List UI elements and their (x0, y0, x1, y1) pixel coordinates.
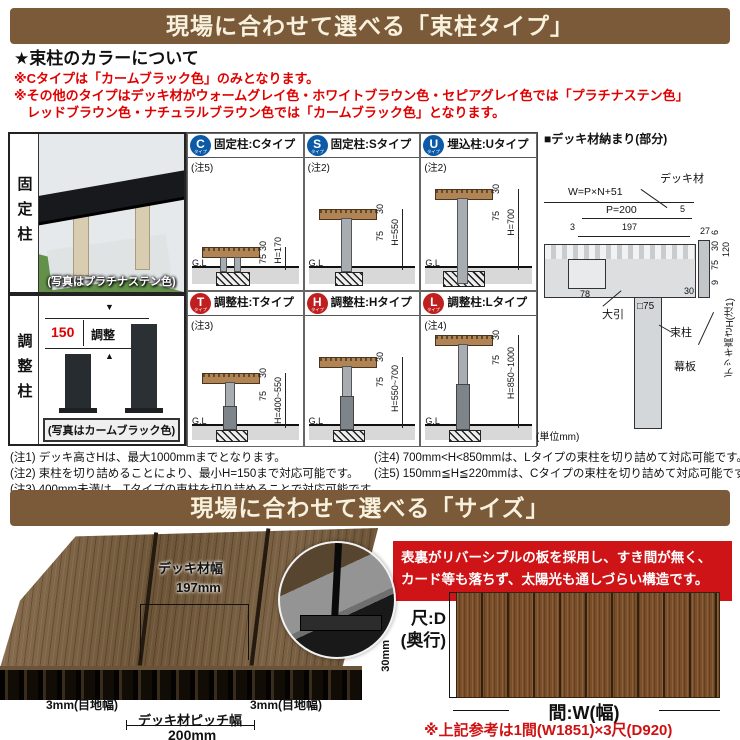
type-header: Hタイプ 調整柱:Hタイプ (305, 292, 420, 316)
post-base (59, 408, 97, 413)
type-c-badge-icon: Cタイプ (190, 135, 211, 156)
height-dim-label: H=550~700 (390, 365, 400, 412)
dim-label: 30 (258, 241, 268, 251)
dim-label: 75 (258, 391, 268, 401)
notes-right: (注4) 700mm<H<850mmは、Lタイプの束柱を切り詰めて対応可能です。… (374, 450, 740, 482)
dim-line (45, 318, 149, 319)
dim-label: 30 (258, 368, 268, 378)
dim-line (402, 357, 403, 428)
dim-label: 6 (710, 230, 720, 235)
type-header: Lタイプ 調整柱:Lタイプ (421, 292, 536, 316)
type-diagram: (注2) G.L 30 75 H=700 (421, 157, 536, 290)
note-line: (注4) 700mm<H<850mmは、Lタイプの束柱を切り詰めて対応可能です。 (374, 450, 740, 466)
dim-label: 75 (491, 211, 501, 221)
post-lower (223, 406, 237, 430)
support-post-section (634, 297, 662, 429)
post-size-label: □75 (637, 301, 654, 312)
fixed-post-caption: (写真はプラチナステン色) (39, 273, 184, 289)
adjust-word: 調整 (91, 326, 115, 343)
type-header: Tタイプ 調整柱:Tタイプ (188, 292, 303, 316)
deck-detail-drawing: デッキ材 W=P×N+51 P=200 5 3 197 27 78 大引 □75… (542, 148, 732, 446)
fascia-board (698, 240, 710, 298)
type-l-badge-icon: Lタイプ (423, 293, 444, 314)
post-type-grid: Cタイプ 固定柱:Cタイプ (注5) G.L 30 75 H=170 Sタイプ (186, 132, 538, 446)
adjust-range-value: 150 (51, 324, 74, 340)
feature-line: カード等も落ちず、太陽光も通しづらい構造です。 (401, 569, 724, 591)
dim-label: 27 (700, 226, 710, 236)
arrow-up-icon: ▲ (105, 351, 114, 361)
color-notes: ※Cタイプは「カームブラック色」のみとなります。 ※その他のタイプはデッキ材がウ… (14, 70, 689, 121)
type-h-badge-icon: Hタイプ (307, 293, 328, 314)
post-type-diagram-area: 固定柱 (写真はプラチナステン色) 調整柱 150 調整 ▼ ▲ (写真はカーム… (8, 128, 732, 446)
type-header: Sタイプ 固定柱:Sタイプ (305, 134, 420, 158)
note-line: (注1) デッキ高さHは、最大1000mmまでとなります。 (10, 450, 382, 466)
deck-material-label: デッキ材 (660, 170, 704, 186)
dim-label: 30 (491, 184, 501, 194)
color-note-line: ※その他のタイプはデッキ材がウォームグレイ色・ホワイトブラウン色・セピアグレイ色… (14, 87, 689, 104)
deck-detail-title: ■デッキ材納まり(部分) (544, 130, 667, 147)
width-formula-label: W=P×N+51 (568, 186, 623, 198)
type-cell-u: Uタイプ 埋込柱:Uタイプ (注2) G.L 30 75 H=700 (420, 133, 537, 291)
height-dim-label: H=400~550 (273, 377, 283, 424)
color-note-line: レッドブラウン色・ナチュラルブラウン色では「カームブラック色」となります。 (14, 104, 689, 121)
dim-line (83, 320, 84, 346)
dim-label: 75 (375, 231, 385, 241)
type-title: 固定柱:Sタイプ (331, 134, 412, 157)
beam-label: 大引 (602, 306, 624, 322)
ground-level-label: G.L (309, 416, 324, 426)
height-dim-label: H=550 (390, 219, 400, 246)
dim-label: 9 (710, 280, 720, 285)
note-line: (注5) 150mm≦H≦220mmは、Cタイプの束柱を切り詰めて対応可能です。 (374, 466, 740, 482)
type-diagram: (注2) G.L 30 75 H=550 (305, 157, 420, 290)
dim-label: 5 (680, 204, 685, 214)
arrow-down-icon: ▼ (105, 302, 114, 312)
support-post-label: 束柱 (670, 324, 692, 340)
type-note-ref: (注2) (424, 159, 446, 174)
dim-line (582, 218, 692, 219)
pitch-width-value: 200mm (168, 727, 216, 740)
feature-line: 表裏がリバーシブルの板を採用し、すき間が無く、 (401, 547, 724, 569)
type-cell-s: Sタイプ 固定柱:Sタイプ (注2) G.L 30 75 H=550 (304, 133, 421, 291)
tall-post (131, 324, 157, 410)
dim-line (518, 335, 519, 428)
deck-width-value: 197mm (176, 580, 221, 595)
note-line: (注2) 束柱を切り詰めることにより、最小H=150まで対応可能です。 (10, 466, 382, 482)
type-title: 調整柱:Hタイプ (331, 292, 412, 315)
leader-line (698, 312, 714, 345)
post (457, 198, 468, 284)
fixed-post-label: 固定柱 (10, 134, 39, 292)
footing-hatch (216, 430, 248, 442)
depth-label-line: (奥行) (378, 630, 446, 652)
color-note-line: ※Cタイプは「カームブラック色」のみとなります。 (14, 70, 689, 87)
adjust-post-caption: (写真はカームブラック色) (43, 418, 180, 442)
ground-level-label: G.L (309, 258, 324, 268)
leader-line (641, 189, 668, 208)
type-note-ref: (注5) (191, 159, 213, 174)
deck-board (202, 247, 260, 258)
dim-label: 30 (710, 241, 720, 251)
type-s-badge-icon: Sタイプ (307, 135, 328, 156)
dim-line (248, 604, 249, 660)
footing-hatch (449, 430, 481, 442)
type-title: 埋込柱:Uタイプ (447, 134, 528, 157)
type-note-ref: (注2) (308, 159, 330, 174)
joint-width-label: 3mm(目地幅) (250, 696, 322, 713)
unit-label: (単位mm) (536, 428, 579, 443)
deck-post-photo (73, 212, 89, 276)
deck-post-photo (135, 196, 150, 270)
post-lower (456, 384, 470, 430)
type-diagram: (注4) G.L 30 75 H=850~1000 (421, 315, 536, 446)
type-note-ref: (注3) (191, 317, 213, 332)
ground-level-label: G.L (425, 416, 440, 426)
adjust-post-label: 調整柱 (10, 296, 39, 444)
dim-label: 120 (721, 242, 731, 257)
type-cell-c: Cタイプ 固定柱:Cタイプ (注5) G.L 30 75 H=170 (187, 133, 304, 291)
adjust-post-illustration: 150 調整 ▼ ▲ (写真はカームブラック色) (39, 296, 184, 444)
dim-line (518, 189, 519, 270)
fascia-label: 幕板 (674, 358, 696, 374)
type-note-ref: (注4) (424, 317, 446, 332)
type-diagram: (注5) G.L 30 75 H=170 (188, 157, 303, 290)
dim-line (402, 209, 403, 270)
depth-bracket-tick (449, 697, 457, 698)
dim-label: 78 (580, 289, 590, 299)
type-cell-t: Tタイプ 調整柱:Tタイプ (注3) G.L 30 75 H=400~550 (187, 291, 304, 447)
deck-detail-panel: ■デッキ材納まり(部分) デッキ材 W=P×N+51 P=200 5 3 197… (542, 128, 732, 446)
post (234, 257, 241, 272)
section2-header-bar: 現場に合わせて選べる「サイズ」 (10, 490, 730, 526)
type-title: 調整柱:Lタイプ (447, 292, 527, 315)
height-dim-label: H=850~1000 (506, 347, 516, 399)
deck-height-label: デッキ高さH(注1) (723, 298, 738, 377)
post (220, 257, 227, 272)
dim-label: 75 (375, 377, 385, 387)
depth-bracket-tick (449, 592, 457, 593)
dim-line (140, 604, 248, 605)
ground-level-label: G.L (192, 258, 207, 268)
footing-hatch (335, 272, 363, 286)
dim-label: 3 (570, 222, 575, 232)
deck-front-edge (0, 666, 362, 700)
dim-line (285, 247, 286, 270)
post (341, 218, 352, 272)
ground-level-label: G.L (425, 258, 440, 268)
beam-section (568, 259, 606, 289)
deck-beam-photo (39, 167, 184, 224)
fixed-post-panel: 固定柱 (写真はプラチナステン色) (8, 132, 186, 294)
deck-width-label: デッキ材幅 (158, 558, 223, 577)
short-post (65, 354, 91, 410)
dim-line (126, 720, 127, 730)
height-dim-label: H=170 (273, 237, 283, 264)
dim-label: 30 (375, 204, 385, 214)
dim-line (254, 720, 255, 730)
type-header: Cタイプ 固定柱:Cタイプ (188, 134, 303, 158)
joint-slot (331, 543, 342, 623)
type-title: 調整柱:Tタイプ (214, 292, 294, 315)
dim-label: 30 (375, 352, 385, 362)
type-t-badge-icon: Tタイプ (190, 293, 211, 314)
ground-level-label: G.L (192, 416, 207, 426)
dim-label: 197 (622, 222, 637, 232)
size-reference-note: ※上記参考は1間(W1851)×3尺(D920) (424, 719, 672, 740)
dim-label: 75 (491, 355, 501, 365)
type-diagram: (注3) G.L 30 75 H=400~550 (188, 315, 303, 446)
type-header: Uタイプ 埋込柱:Uタイプ (421, 134, 536, 158)
fixed-post-photo: (写真はプラチナステン色) (39, 134, 184, 292)
footing-hatch (216, 272, 250, 286)
dim-label: 75 (258, 254, 268, 264)
joint-width-label: 3mm(目地幅) (46, 696, 118, 713)
dim-line (544, 202, 694, 203)
dim-line (285, 373, 286, 428)
width-dim-line (453, 710, 509, 711)
type-cell-l: Lタイプ 調整柱:Lタイプ (注4) G.L 30 75 H=850~1000 (420, 291, 537, 447)
type-cell-h: Hタイプ 調整柱:Hタイプ G.L 30 75 H=550~700 (304, 291, 421, 447)
post-upper (342, 366, 352, 398)
dim-line (126, 725, 254, 726)
color-section-title: ★束柱のカラーについて (14, 44, 199, 69)
adjust-post-panel: 調整柱 150 調整 ▼ ▲ (写真はカームブラック色) (8, 294, 186, 446)
deck-plan-view (456, 592, 720, 698)
hollow-core (300, 615, 382, 631)
dim-label: 75 (710, 260, 720, 270)
type-u-badge-icon: Uタイプ (423, 135, 444, 156)
post-upper (458, 344, 468, 386)
dim-label: 30 (491, 330, 501, 340)
post-base (125, 408, 163, 413)
post-upper (225, 382, 235, 408)
type-title: 固定柱:Cタイプ (214, 134, 295, 157)
dim-line (578, 236, 690, 237)
footing-hatch (333, 430, 365, 442)
post-lower (340, 396, 354, 430)
height-dim-label: H=700 (506, 209, 516, 236)
deck-joint-closeup-photo (278, 541, 396, 659)
pitch-dim-label: P=200 (606, 204, 637, 216)
section1-header-bar: 現場に合わせて選べる「束柱タイプ」 (10, 8, 730, 44)
dim-label: 30 (684, 286, 694, 296)
depth-bracket (449, 592, 450, 698)
type-diagram: G.L 30 75 H=550~700 (305, 315, 420, 446)
width-dim-line (659, 710, 720, 711)
dim-line (140, 604, 141, 660)
